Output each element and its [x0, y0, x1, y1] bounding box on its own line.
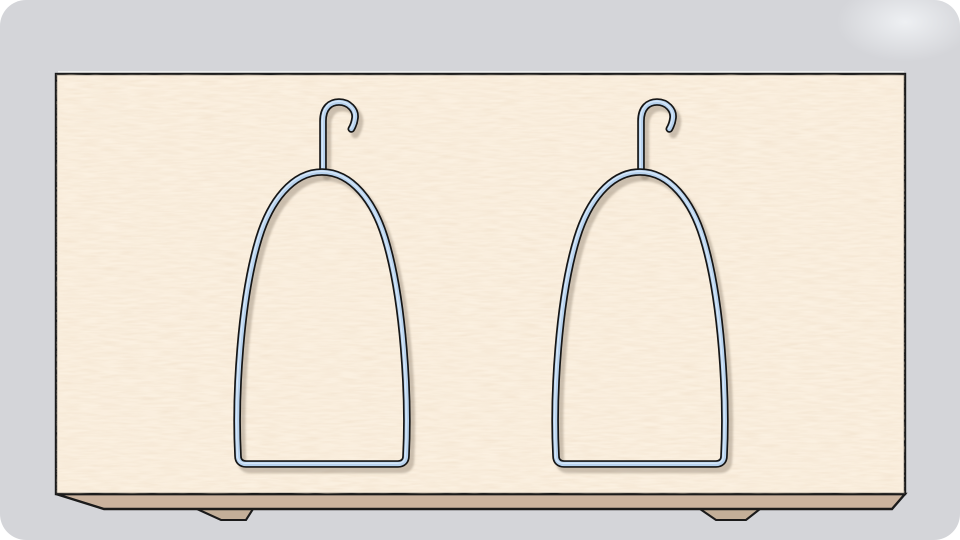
board-foot-left	[197, 509, 253, 520]
board-foot-right	[700, 509, 760, 520]
hangers-on-board-illustration	[0, 0, 960, 540]
board-grain-texture	[56, 74, 905, 494]
board-bottom-edge	[56, 494, 905, 509]
illustration-canvas	[0, 0, 960, 540]
